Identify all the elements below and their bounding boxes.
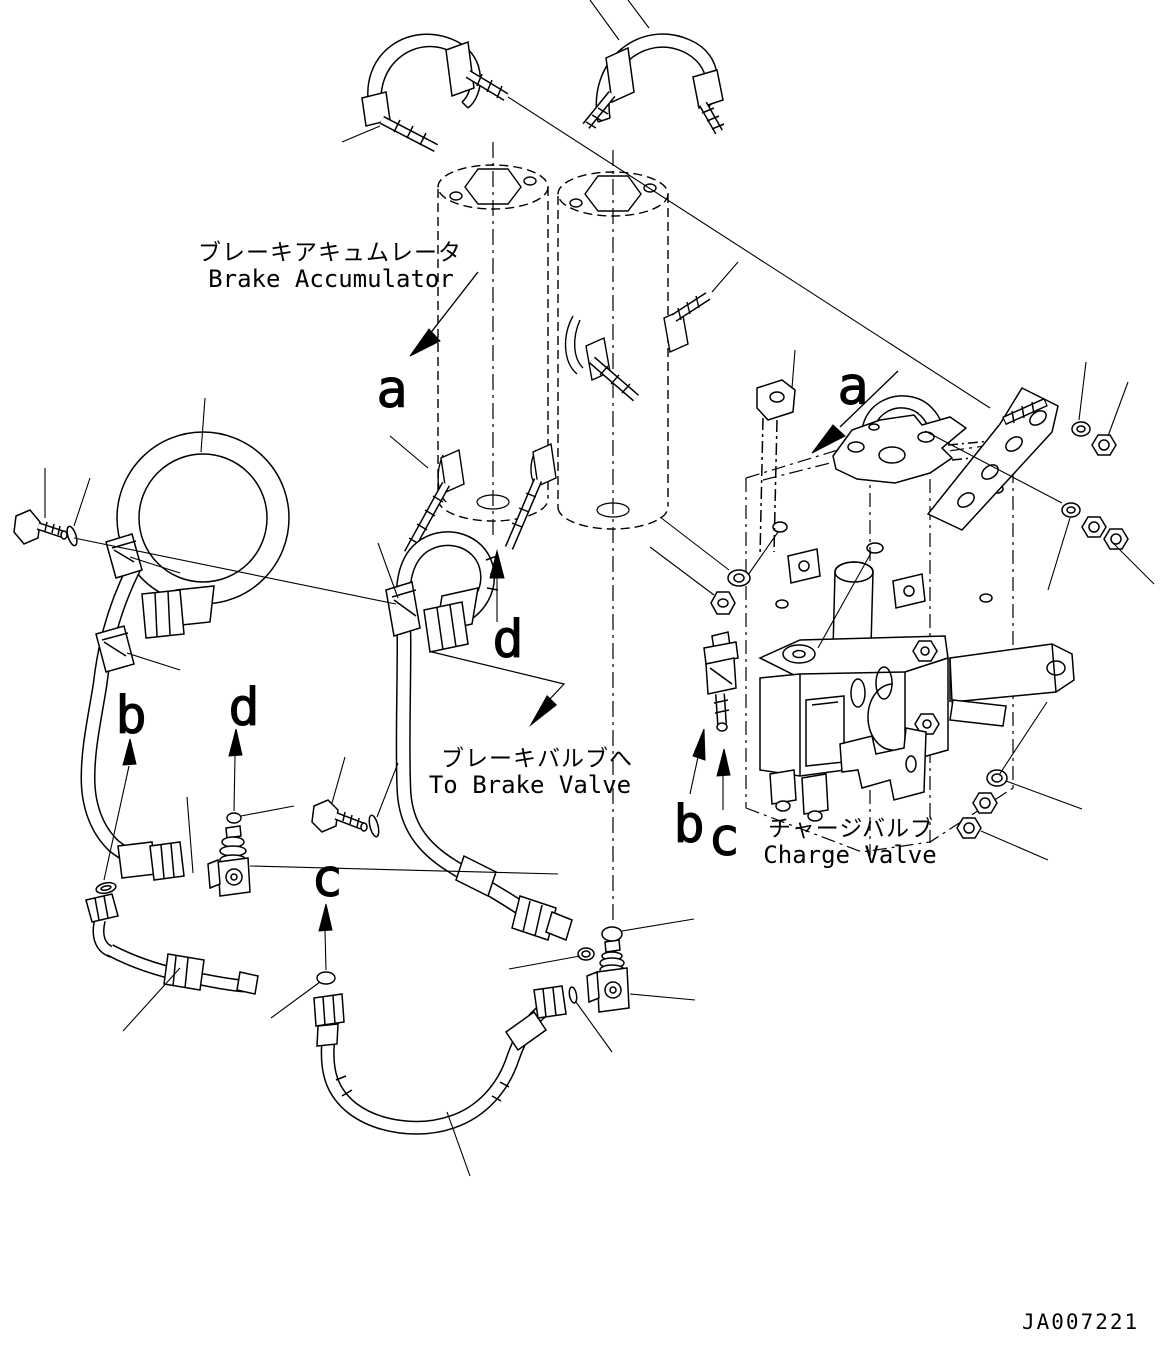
to-brake-valve-label-en: To Brake Valve — [429, 771, 631, 799]
view-letter-a-left: a — [376, 272, 478, 420]
charge-valve-label-jp: チャージバルブ — [768, 816, 934, 842]
right-arm-bracket — [950, 644, 1074, 726]
label-brake-accumulator: ブレーキアキュムレータ Brake Accumulator — [198, 240, 462, 293]
hose-small-left — [86, 894, 258, 994]
bolt-center — [312, 800, 367, 832]
valve-washer-nut-left — [711, 570, 750, 614]
view-letter-c-valve: c — [708, 749, 739, 868]
hose-left-loop — [14, 432, 289, 895]
valve-fitting-2 — [568, 927, 629, 1012]
brake-accumulator-label-jp: ブレーキアキュムレータ — [198, 240, 462, 266]
view-letter-label: a — [376, 360, 407, 420]
to-brake-valve-label-jp: ブレーキバルブへ — [441, 746, 633, 772]
left-arm-bracket — [757, 380, 795, 556]
charge-valve-assembly — [704, 380, 1128, 856]
fasteners-top-right — [1062, 422, 1128, 549]
hose-center — [312, 539, 572, 940]
washer-b-target — [95, 881, 117, 895]
washer-slot-left — [65, 525, 79, 546]
valve-left-fitting — [704, 632, 738, 731]
label-to-brake-valve: ブレーキバルブへ To Brake Valve — [429, 652, 633, 799]
parts-diagram-page: a a b d d c — [0, 0, 1163, 1353]
view-letter-c-center: c — [271, 849, 343, 1018]
view-letter-d-center: d — [490, 551, 524, 670]
slot-washer-right — [568, 987, 578, 1004]
view-letter-label: c — [708, 808, 739, 868]
charge-valve-label-en: Charge Valve — [763, 841, 936, 869]
view-letter-label: b — [115, 686, 146, 746]
brake-accumulator-left — [408, 142, 556, 553]
parts-diagram: a a b d d c — [0, 0, 1163, 1353]
view-letter-d-left: d — [227, 678, 294, 823]
band-clamp-left — [362, 34, 506, 148]
oring-right — [578, 948, 594, 960]
valve-fitting-1 — [208, 826, 250, 896]
plug-ellipse-right — [602, 927, 622, 941]
view-letter-label: d — [492, 610, 523, 670]
fasteners-bottom-right — [957, 770, 1007, 838]
view-letter-label: c — [311, 849, 342, 909]
label-charge-valve: チャージバルブ Charge Valve — [763, 816, 936, 869]
brake-accumulator-label-en: Brake Accumulator — [208, 265, 454, 293]
band-clamp-right — [586, 34, 724, 132]
bolt-left — [14, 510, 67, 544]
view-letter-b-valve: b — [673, 729, 705, 855]
hose-bottom — [314, 986, 566, 1128]
view-letter-label: b — [673, 795, 704, 855]
figure-number: JA007221 — [1022, 1310, 1139, 1334]
view-letter-label: d — [228, 678, 259, 738]
view-letter-label: a — [837, 357, 868, 417]
washer-slot-center — [367, 814, 380, 837]
